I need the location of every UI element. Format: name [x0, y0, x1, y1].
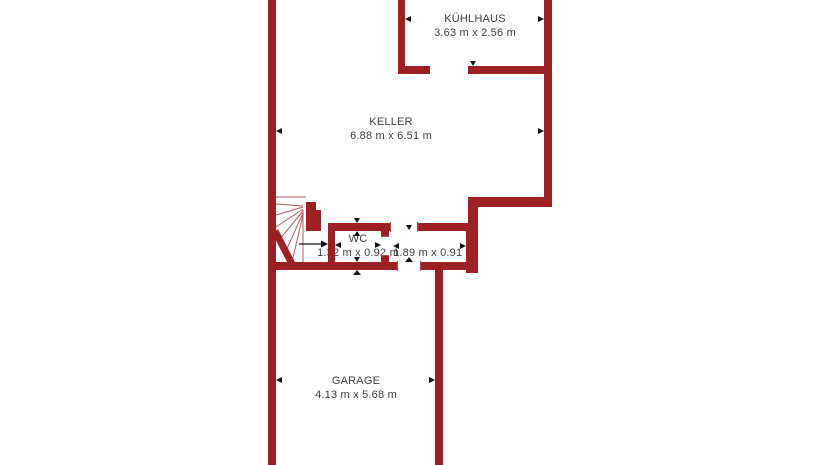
dimension-marker-icon	[375, 242, 381, 248]
wall-kuehlhaus-left	[398, 0, 405, 74]
walls	[268, 0, 552, 465]
wall-hall-top	[418, 223, 478, 231]
dimension-marker-icon	[406, 225, 412, 230]
wall-garage-right	[435, 262, 443, 465]
stair-tread-line	[279, 211, 303, 240]
wall-kuehlhaus-bottom-left	[398, 66, 430, 74]
dimension-marker-icon	[276, 128, 282, 134]
wall-stair-diagonal	[275, 231, 292, 264]
dimension-marker-icon	[353, 270, 361, 275]
wall-stair-stub	[306, 202, 321, 231]
stair-tread-line	[276, 207, 303, 215]
wall-wc-left	[328, 223, 335, 270]
dimension-marker-icon	[393, 243, 399, 249]
wall-wc-top	[328, 223, 390, 231]
stair-tread-line	[276, 209, 303, 227]
dimension-marker-icon	[470, 61, 476, 66]
wall-wc-door-stub-bottom	[381, 256, 389, 270]
wall-right-outer	[544, 0, 552, 207]
dimension-marker-icon	[405, 257, 413, 262]
dimension-marker-icon	[538, 16, 544, 22]
stair-direction-arrow-icon	[321, 241, 328, 248]
wall-wc-door-stub-top	[381, 223, 389, 236]
floorplan-canvas: KÜHLHAUS 3.63 m x 2.56 m KELLER 6.88 m x…	[0, 0, 820, 465]
stair-tread-line	[276, 204, 303, 206]
dimension-marker-icon	[276, 377, 282, 383]
wall-kuehlhaus-bottom-right	[468, 66, 552, 74]
dimension-marker-icon	[354, 218, 360, 223]
dimension-marker-icon	[429, 377, 435, 383]
wall-bottom-right	[421, 262, 478, 270]
dimension-marker-icon	[354, 231, 360, 236]
dimension-marker-icon	[460, 243, 466, 249]
wall-step-horizontal	[468, 197, 552, 207]
dimension-marker-icon	[335, 242, 341, 248]
dimension-marker-icon	[405, 16, 411, 22]
dimension-marker-icon	[538, 128, 544, 134]
dimension-marker-icon	[354, 257, 360, 262]
floorplan-drawing	[0, 0, 820, 465]
